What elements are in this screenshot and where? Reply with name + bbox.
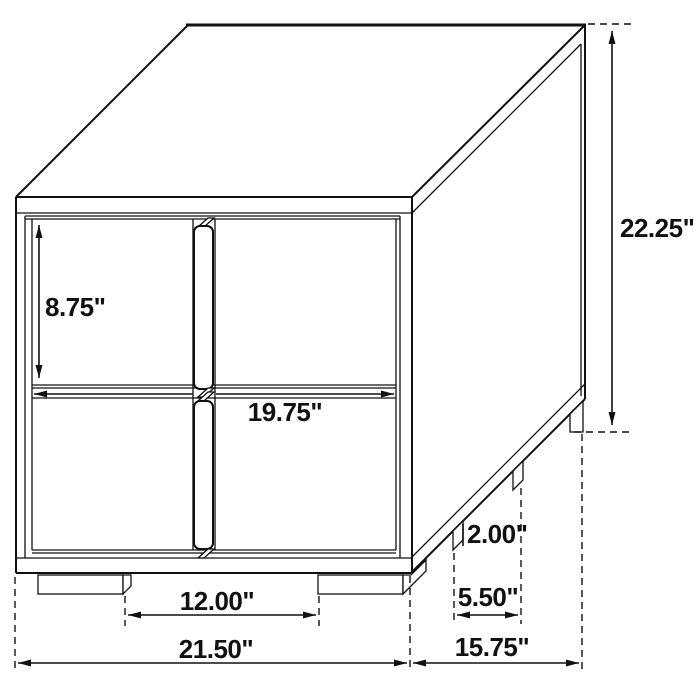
feet [38,401,583,594]
front-right-foot-side [403,560,426,594]
top-face [16,25,586,213]
dim-side-foot-spacing: 5.50" [454,488,521,624]
lower-handle-bar [194,401,213,549]
dim-overall-depth-label: 15.75" [455,632,529,662]
dim-overall-height-label: 22.25" [620,213,694,243]
dim-drawer-width-label: 19.75" [248,397,322,427]
front-left-foot-side [123,575,131,594]
dim-overall-height: 22.25" [574,24,694,432]
drawer-handles [194,218,214,558]
dim-front-foot-spacing: 12.00" [125,586,319,626]
dim-front-foot-spacing-label: 12.00" [180,586,254,616]
front-right-foot [318,575,403,594]
nightstand-drawing: 8.75" 19.75" 22.25" 2.00" 5.50" [0,0,700,700]
dim-overall-width-label: 21.50" [179,634,253,664]
dim-side-foot-spacing-label: 5.50" [458,582,518,612]
side-foot-mid-front [453,521,463,550]
dim-foot-height: 2.00" [463,519,527,549]
dim-drawer-height-label: 8.75" [45,292,105,322]
upper-handle-bar [194,226,213,389]
dimension-diagram: 8.75" 19.75" 22.25" 2.00" 5.50" [0,0,700,700]
dim-drawer-height: 8.75" [39,225,105,378]
side-foot-mid-back [513,461,523,490]
back-right-foot [570,401,583,432]
dim-overall-depth: 15.75" [413,434,582,671]
front-left-foot [38,575,123,594]
dim-foot-height-label: 2.00" [467,519,527,549]
